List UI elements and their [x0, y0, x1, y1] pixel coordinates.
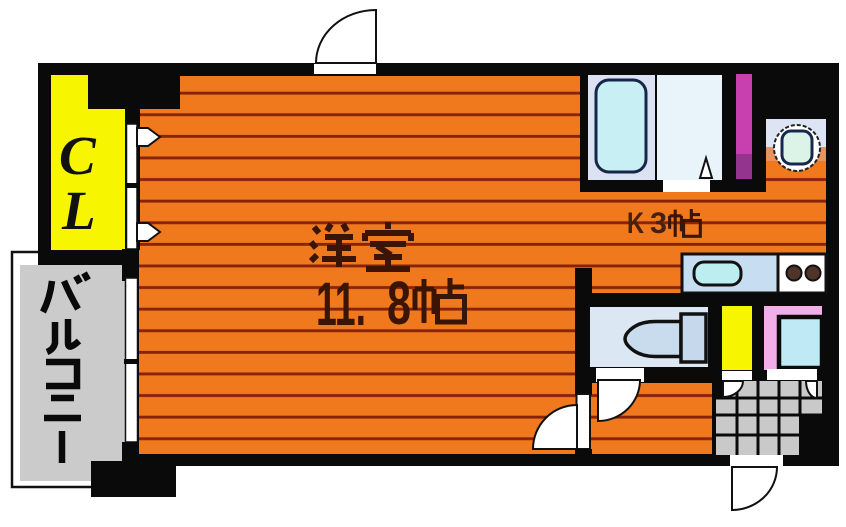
svg-text:K: K	[627, 207, 644, 240]
svg-text:8: 8	[387, 269, 411, 337]
svg-text:C: C	[59, 125, 97, 186]
svg-text:3: 3	[650, 207, 667, 240]
svg-text:11.: 11.	[316, 270, 366, 338]
svg-text:L: L	[61, 180, 96, 241]
